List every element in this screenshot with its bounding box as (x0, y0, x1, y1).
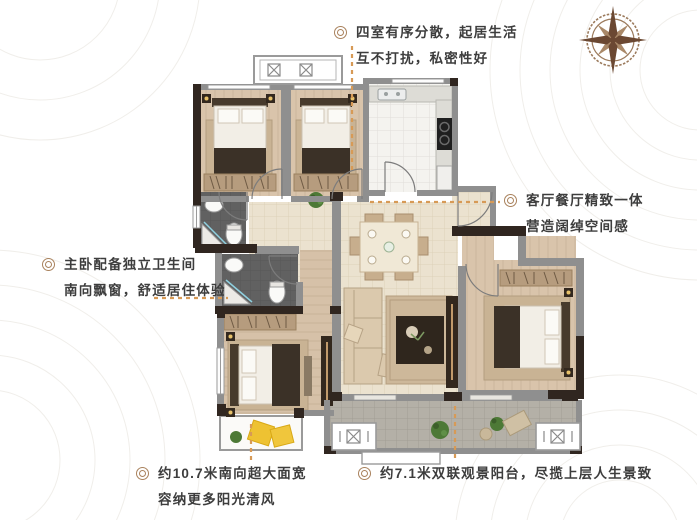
master-corridor-floor (300, 250, 334, 318)
floorplan-page: 四室有序分散，起居生活 互不打扰，私密性好 客厅餐厅精致一体 营造阔绰空间感 主… (0, 0, 697, 520)
closet-southeast (500, 270, 572, 286)
annotation-bottom-left: 约10.7米南向超大面宽 容纳更多阳光清风 (136, 461, 307, 513)
equipment-platform (254, 56, 342, 84)
bed-north-2 (296, 94, 357, 182)
annotation-marker-icon (136, 467, 149, 480)
dining-table (350, 214, 428, 280)
kitchen-fridge (437, 166, 452, 190)
annotation-marker-icon (504, 194, 517, 207)
annotation-right: 客厅餐厅精致一体 营造阔绰空间感 (504, 188, 644, 240)
annotation-marker-icon (358, 467, 371, 480)
closet-north-1 (204, 174, 276, 191)
closet-north-2 (294, 174, 358, 191)
annotation-top: 四室有序分散，起居生活 互不打扰，私密性好 (334, 20, 518, 72)
bed-master (226, 332, 312, 417)
annotation-bottom-right-line1: 约7.1米双联观景阳台，尽揽上层人生景致 (380, 461, 652, 487)
annotation-top-line2: 互不打扰，私密性好 (356, 46, 518, 72)
annotation-left: 主卧配备独立卫生间 南向飘窗，舒适居住体验 (42, 252, 226, 304)
coffee-table (386, 296, 452, 384)
compass-icon (579, 6, 647, 74)
annotation-right-line2: 营造阔绰空间感 (526, 214, 644, 240)
annotation-bottom-left-line1: 约10.7米南向超大面宽 (158, 461, 307, 487)
annotation-top-line1: 四室有序分散，起居生活 (356, 20, 518, 46)
annotation-marker-icon (42, 258, 55, 271)
annotation-left-line2: 南向飘窗，舒适居住体验 (64, 278, 226, 304)
annotation-right-line1: 客厅餐厅精致一体 (526, 188, 644, 214)
bed-bench (304, 356, 312, 396)
annotation-marker-icon (334, 26, 347, 39)
annotation-left-line1: 主卧配备独立卫生间 (64, 252, 226, 278)
tv-cabinet-living (446, 296, 458, 388)
kitchen-sink (378, 89, 406, 100)
annotation-bottom-left-line2: 容纳更多阳光清风 (158, 487, 307, 513)
closet-master (224, 314, 296, 330)
bed-southeast (484, 288, 573, 380)
annotation-bottom-right: 约7.1米双联观景阳台，尽揽上层人生景致 (358, 461, 652, 487)
